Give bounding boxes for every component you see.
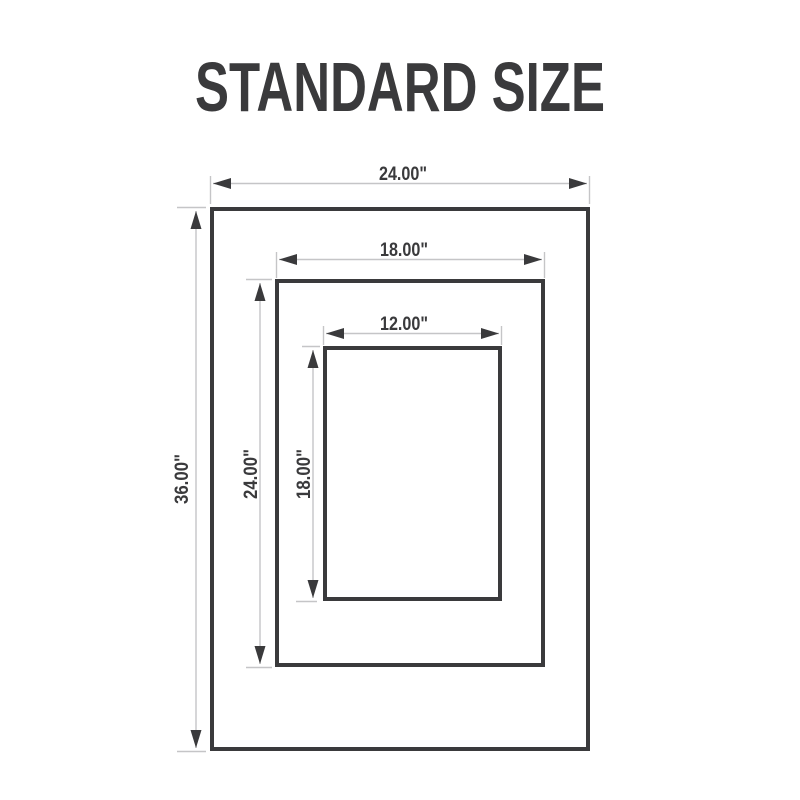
inner-rectangle [325, 348, 500, 599]
middle-height-label: 24.00" [241, 449, 262, 499]
middle-width-label: 18.00" [380, 240, 428, 261]
middle-rectangle [277, 281, 543, 665]
standard-size-diagram: STANDARD SIZE 24.00" 18.00" 12.00" [0, 0, 800, 800]
page-title: STANDARD SIZE [195, 48, 605, 126]
inner-height-label: 18.00" [294, 449, 315, 499]
inner-height-dimension: 18.00" [294, 347, 320, 602]
middle-height-dimension: 24.00" [241, 280, 272, 668]
inner-width-label: 12.00" [380, 314, 428, 335]
outer-width-label: 24.00" [379, 164, 427, 185]
outer-width-dimension: 24.00" [211, 164, 590, 204]
inner-width-dimension: 12.00" [324, 314, 502, 345]
diagram-svg: STANDARD SIZE 24.00" 18.00" 12.00" [0, 0, 800, 800]
outer-height-label: 36.00" [172, 454, 193, 504]
middle-width-dimension: 18.00" [277, 240, 545, 278]
outer-height-dimension: 36.00" [172, 208, 206, 752]
